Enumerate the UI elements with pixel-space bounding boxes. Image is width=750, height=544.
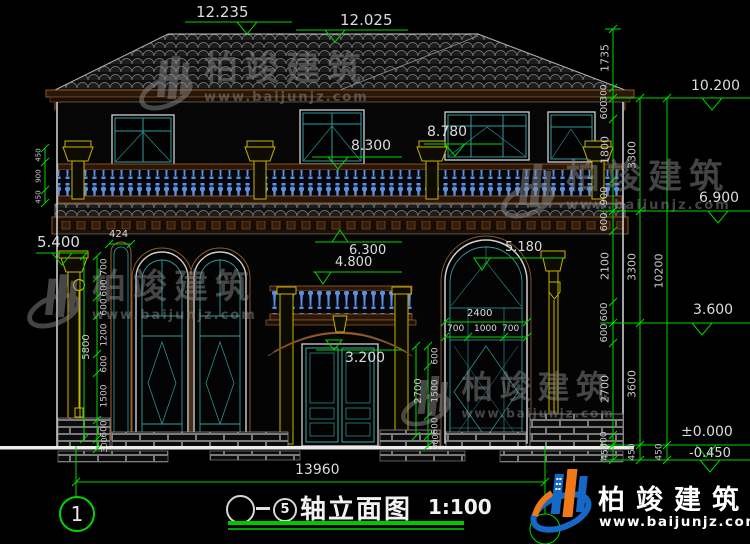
dim-chainA-8: 600: [600, 323, 610, 342]
dim-capital-1: 900: [36, 169, 43, 182]
watermark-logo-icon: [138, 52, 196, 112]
axis-bubble-5: 5: [273, 498, 297, 522]
dim-door-1: 1500: [432, 380, 441, 403]
ground-line: [0, 446, 634, 450]
dim-chainC-0: 10200: [654, 254, 665, 289]
dim-door-0: 600: [432, 347, 441, 364]
level-outdoor: -0.450: [689, 447, 731, 460]
dim-leftwin-total: 5800: [82, 334, 92, 359]
level-arch-window: 5.180: [505, 241, 542, 254]
watermark-logo-icon: [400, 372, 454, 428]
watermark-brand: 柏竣建筑: [204, 52, 369, 88]
watermark-brand: 柏竣建筑: [92, 270, 257, 306]
dim-leftwin-1: 600: [101, 279, 110, 296]
dim-leftwin-3: 1200: [101, 324, 110, 347]
title-underline-thick: [228, 521, 464, 525]
watermark-logo-icon: [26, 270, 84, 330]
dim-chainA-1: 300: [601, 84, 610, 101]
dim-chainA-11: 450: [602, 443, 611, 460]
dim-leftwin-4: 600: [101, 355, 110, 372]
dim-door-total: 2700: [414, 378, 424, 403]
watermark-logo-icon: [500, 160, 558, 220]
dim-chainA-6: 2100: [600, 252, 611, 280]
brand-name: 柏竣建筑: [598, 478, 750, 517]
dim-niche-width: 424: [109, 230, 128, 240]
watermark-url: www.baijunjz.com: [204, 90, 369, 105]
watermark-url: www.baijunjz.com: [461, 407, 614, 421]
dim-chainA-7: 600: [600, 302, 610, 321]
dim-capital-0: 450: [36, 148, 43, 161]
dim-chainA-0: 1735: [600, 44, 611, 72]
level-balcony-floor: 4.800: [335, 256, 372, 269]
dim-leftwin-2: 600: [101, 298, 110, 315]
level-left-capital: 5.400: [37, 235, 80, 250]
dim-chainB-0: 3300: [627, 141, 638, 169]
dim-chainA-9: 2700: [600, 375, 611, 403]
dim-total-width: 13960: [295, 463, 340, 477]
dim-chainB-2: 3600: [627, 370, 638, 398]
axis-range-dash: [256, 507, 270, 510]
axis-bubble-empty: [226, 495, 255, 524]
dim-leftwin-5: 1500: [101, 385, 110, 408]
dim-window-w2: 700: [502, 325, 519, 334]
axis-bubble-1: 1: [59, 496, 95, 532]
dim-door-2: 600: [432, 417, 441, 434]
cad-canvas: 柏竣建筑 www.baijunjz.com 柏竣建筑 www.baijunjz.…: [0, 0, 750, 544]
dim-chainA-5: 600: [600, 212, 610, 231]
level-f2-window: 8.300: [351, 139, 391, 153]
level-f2-capital: 8.780: [427, 125, 467, 139]
brand-logo: 柏竣建筑 www.baijunjz.com: [528, 464, 750, 544]
watermark-right: 柏竣建筑 www.baijunjz.com: [500, 160, 731, 220]
brand-logo-icon: [528, 464, 598, 544]
watermark-left: 柏竣建筑 www.baijunjz.com: [26, 270, 257, 330]
level-right-f2: 6.900: [699, 191, 739, 205]
watermark-top: 柏竣建筑 www.baijunjz.com: [138, 52, 369, 112]
dim-chainB-3: 450: [629, 443, 638, 460]
dim-leftwin-6: 600: [101, 420, 110, 437]
dim-chainA-2: 600: [600, 100, 610, 119]
brand-url: www.baijunjz.com: [599, 514, 750, 530]
level-door-arch: 3.200: [345, 351, 385, 365]
dim-leftwin-0: 700: [101, 258, 110, 275]
dim-chainB-1: 3300: [627, 253, 638, 281]
level-right-eave: 10.200: [691, 79, 740, 93]
watermark-url: www.baijunjz.com: [92, 308, 257, 323]
drawing-scale: 1:100: [428, 495, 492, 519]
footing-stones: [58, 451, 623, 462]
dim-capital-2: 450: [36, 190, 43, 203]
title-underline-thin: [228, 528, 464, 530]
dim-leftwin-7: 300: [101, 437, 109, 452]
dim-window-w1: 1000: [474, 325, 497, 334]
dim-chainA-4: 900: [600, 186, 610, 205]
watermark-brand: 柏竣建筑: [461, 372, 614, 405]
dim-chainC-1: 450: [656, 443, 665, 460]
level-ground: ±0.000: [681, 425, 733, 439]
dim-door-3: 300: [432, 434, 440, 449]
level-right-f1: 3.600: [693, 303, 733, 317]
dim-window-w0: 700: [447, 325, 464, 334]
level-ridge: 12.235: [196, 5, 249, 20]
dim-window-total-width: 2400: [467, 309, 492, 319]
level-ridge2: 12.025: [340, 13, 393, 28]
dim-chainA-3: 1800: [600, 136, 611, 164]
